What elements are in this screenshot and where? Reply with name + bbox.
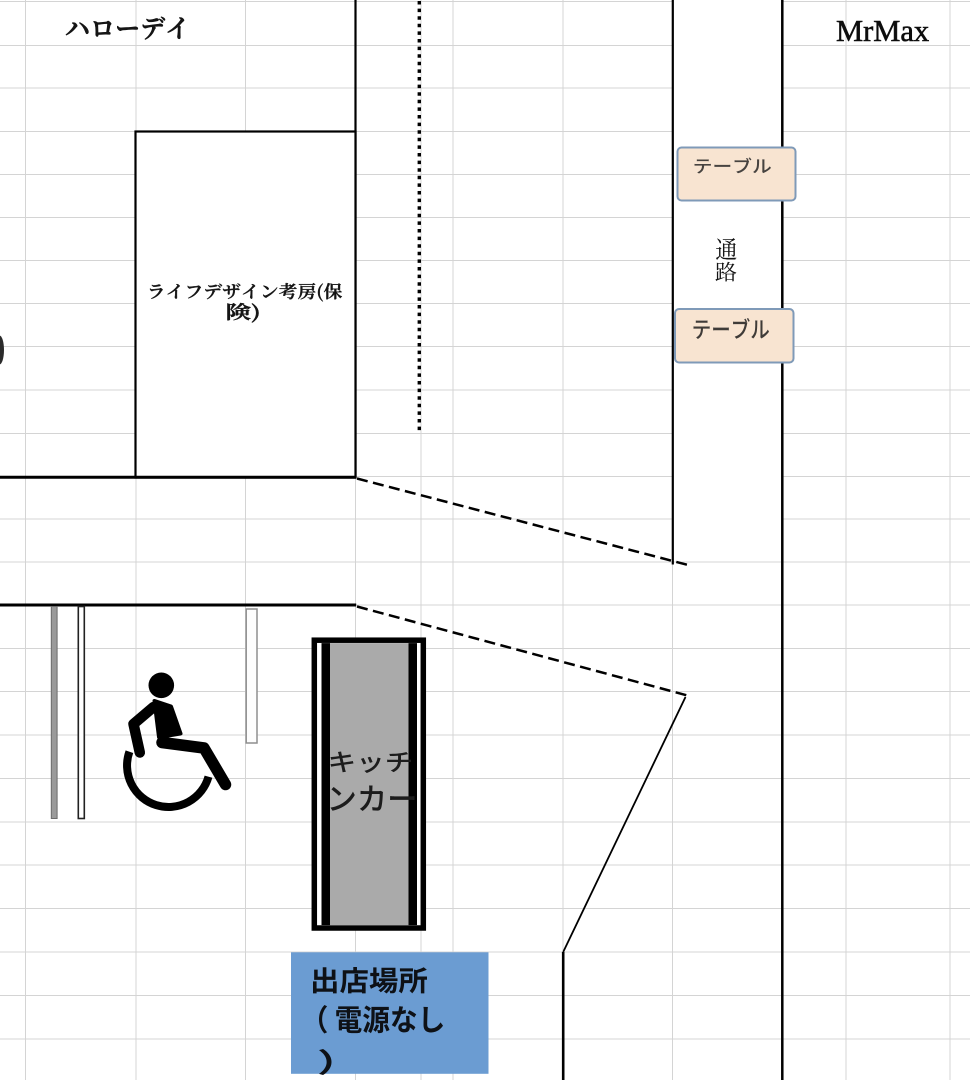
svg-text:MrMax: MrMax — [836, 14, 929, 48]
